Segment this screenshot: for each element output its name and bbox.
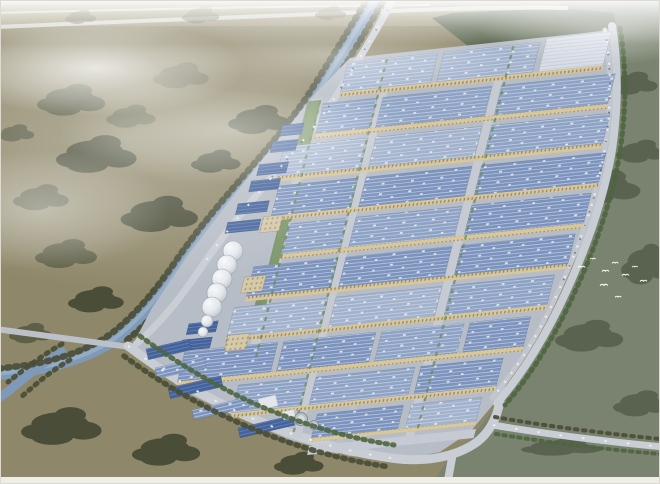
image-border-bottom [0, 477, 660, 484]
industrial-park-scene [0, 0, 660, 484]
storage-tank [202, 297, 222, 317]
small-tank [201, 315, 213, 327]
fog-patch [150, 15, 510, 95]
office-building [224, 333, 250, 351]
aerial-rendering-image: Bird's-eye architectural rendering of a … [0, 0, 660, 484]
small-tank [198, 327, 208, 337]
